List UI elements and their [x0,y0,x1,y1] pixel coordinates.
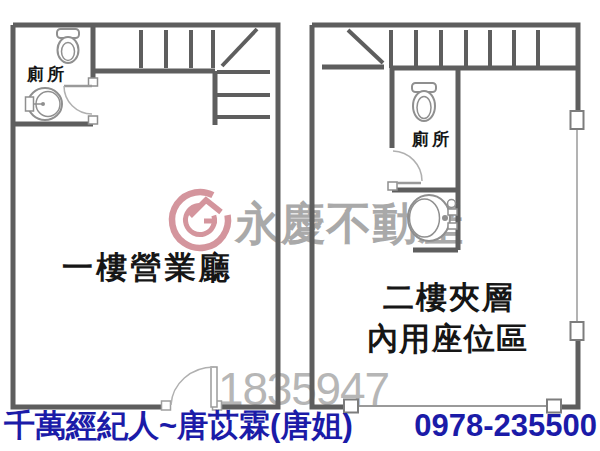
floor1-toilet-label: 廁所 [26,65,64,84]
floor2-toilet-door-icon [388,151,422,190]
floor2-toilet-icon [412,83,436,121]
floor2-stairs-icon [322,30,578,68]
floor2-toilet-label: 廁所 [411,130,449,149]
floor1-toilet-door-icon [64,78,98,124]
brand-logo-icon [168,188,233,253]
floor1-entry-door-icon [162,367,222,410]
floor2-right-window-icon [571,111,584,340]
footer-contact-bar: 千萬經紀人~唐苡霖(唐姐) 0978-235500 [4,408,597,444]
floor1-toilet-icon [57,29,79,63]
phone-number-text: 0978-235500 [414,408,597,444]
floor1-room-label: 一樓營業廳 [62,250,230,285]
floorplan-image: 永慶不動產 1835947 [0,0,600,451]
floorplan-svg: 永慶不動產 1835947 [0,0,600,451]
agent-name-text: 千萬經紀人~唐苡霖(唐姐) [4,408,353,444]
floor1-sink-icon [26,88,63,120]
floor1-stairs-icon [93,29,270,125]
floor2-room-label-line1: 二樓夾層 [383,280,513,315]
floor2-room-label-line2: 內用座位區 [367,321,527,356]
